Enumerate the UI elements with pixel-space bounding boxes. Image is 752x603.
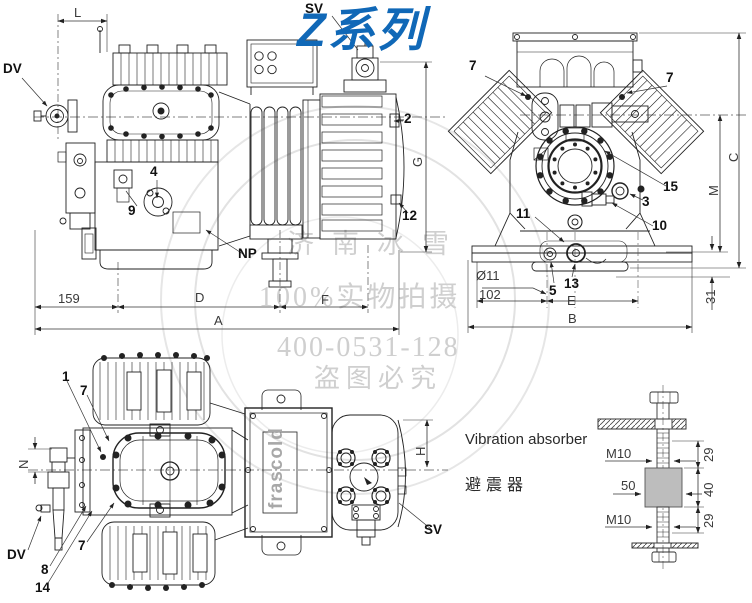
dim-C: C bbox=[727, 153, 740, 162]
callout-2: 2 bbox=[404, 112, 412, 126]
callout-8: 8 bbox=[41, 563, 49, 577]
dim-L: L bbox=[74, 6, 81, 19]
dim-B: B bbox=[568, 312, 577, 325]
drawing-canvas: 济南冰雪 100%实物拍摄 400-0531-128 盗图必究 bbox=[0, 0, 752, 603]
dim-dia11: Ø11 bbox=[476, 269, 500, 282]
labels-layer: L SV DV 2 G 12 4 9 NP 159 D F A 7 7 C M … bbox=[0, 0, 752, 603]
callout-7-right: 7 bbox=[666, 71, 674, 85]
callout-SV-top: SV bbox=[424, 523, 442, 537]
dim-29-top: 29 bbox=[702, 448, 715, 462]
callout-NP: NP bbox=[238, 247, 257, 261]
dim-F: F bbox=[321, 293, 329, 306]
dim-159: 159 bbox=[58, 292, 80, 305]
absorber-title-zh: 避震器 bbox=[465, 471, 528, 495]
callout-11: 11 bbox=[516, 207, 530, 221]
dim-D: D bbox=[195, 291, 204, 304]
dim-50: 50 bbox=[621, 479, 635, 492]
callout-15: 15 bbox=[663, 180, 678, 194]
callout-10: 10 bbox=[652, 219, 667, 233]
series-title: Z系列 bbox=[297, 0, 426, 60]
callout-7-bottom: 7 bbox=[78, 539, 86, 553]
callout-12: 12 bbox=[402, 209, 417, 223]
callout-3: 3 bbox=[642, 195, 650, 209]
dim-A: A bbox=[214, 314, 223, 327]
dim-M10-bottom: M10 bbox=[606, 513, 631, 526]
callout-DV-side: DV bbox=[3, 62, 22, 76]
absorber-title-en: Vibration absorber bbox=[465, 431, 587, 448]
dim-N: N bbox=[17, 460, 30, 469]
dim-M: M bbox=[707, 185, 720, 196]
callout-1: 1 bbox=[62, 370, 70, 384]
frascold-logo: frascold bbox=[266, 427, 288, 509]
dim-29-bottom: 29 bbox=[702, 514, 715, 528]
dim-102: 102 bbox=[479, 288, 501, 301]
dim-H: H bbox=[414, 447, 427, 456]
dim-31: 31 bbox=[704, 290, 717, 304]
callout-4: 4 bbox=[150, 165, 158, 179]
callout-13: 13 bbox=[564, 277, 579, 291]
callout-14: 14 bbox=[35, 581, 50, 595]
dim-E: E bbox=[567, 294, 576, 307]
callout-7-top: 7 bbox=[80, 384, 88, 398]
callout-9: 9 bbox=[128, 204, 136, 218]
callout-DV-top: DV bbox=[7, 548, 26, 562]
dim-40: 40 bbox=[702, 483, 715, 497]
dim-M10-top: M10 bbox=[606, 447, 631, 460]
callout-7-left: 7 bbox=[469, 59, 477, 73]
dim-G: G bbox=[411, 157, 424, 167]
callout-5: 5 bbox=[549, 284, 557, 298]
